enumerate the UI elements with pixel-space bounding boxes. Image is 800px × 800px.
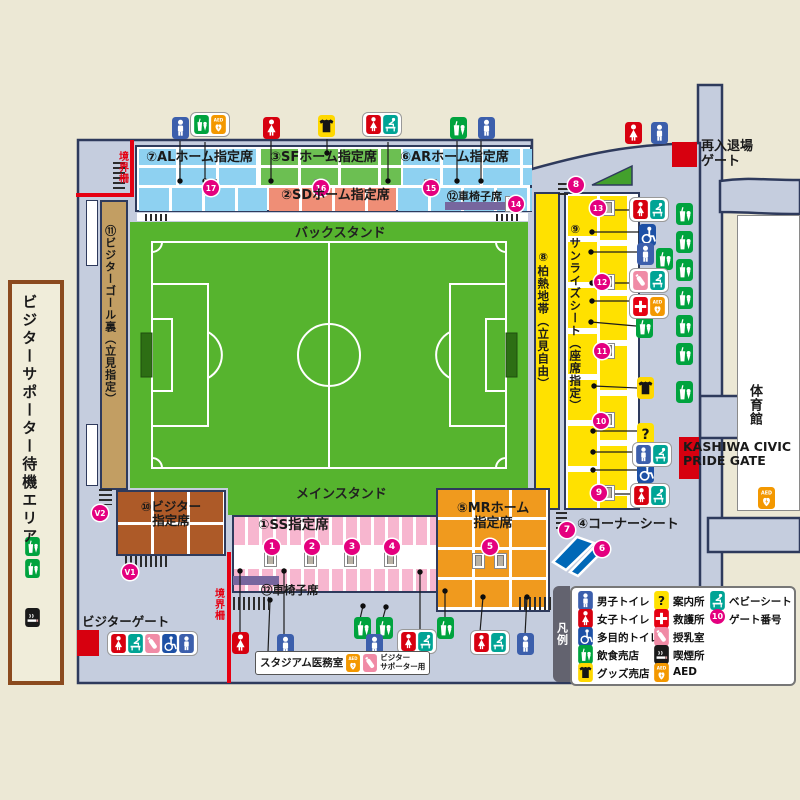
boundary-fence-label-top: 境界柵 <box>116 151 128 184</box>
gate-number-8: 8 <box>568 177 584 193</box>
female-icon <box>366 115 381 134</box>
entrance-door-icon <box>494 553 507 569</box>
food-icon <box>450 117 467 139</box>
gate-number-icon: 10 <box>710 609 725 624</box>
babyseat-icon <box>128 634 143 653</box>
seat-dot <box>417 569 422 574</box>
gate-number-6: 6 <box>594 541 610 557</box>
stadium-medical-room-box: スタジアム医務室 AED ビジター サポーター用 <box>255 651 430 675</box>
food-icon <box>676 315 693 337</box>
male-icon <box>517 633 534 655</box>
gate-number-15: 15 <box>423 180 439 196</box>
wheelchair-icon <box>578 627 593 646</box>
seat-dot <box>268 178 273 183</box>
legend-label: 喫煙所 <box>673 648 705 663</box>
seat-dot <box>177 178 182 183</box>
icon-group <box>470 630 510 655</box>
legend-label: AED <box>673 666 697 678</box>
stand-al-label: ⑦ALホーム指定席 <box>146 151 253 166</box>
icon-group: AED <box>629 294 669 319</box>
seat-dot <box>590 428 595 433</box>
ss-reserved-label: ①SS指定席 <box>258 518 329 534</box>
seat-dot <box>383 604 388 609</box>
icon-group <box>629 197 669 222</box>
food-icon <box>676 203 693 225</box>
icon-group <box>632 442 672 467</box>
stand-sd-label: ②SDホーム指定席 <box>281 189 390 204</box>
legend-label: 授乳室 <box>673 630 705 645</box>
seat-dot <box>385 178 390 183</box>
nursing-icon <box>145 634 160 653</box>
kashiwa-hot-zone-label: ⑧柏熱地帯（立見自由） <box>536 250 549 390</box>
goods-icon <box>578 663 593 682</box>
mr-home-label: ⑤MRホーム 指定席 <box>436 502 550 532</box>
gate-number-V1: V1 <box>122 564 138 580</box>
visitor-gate-marker <box>77 630 99 656</box>
male-icon <box>637 243 654 265</box>
babyseat-icon <box>653 445 668 464</box>
entrance-door-icon <box>472 553 485 569</box>
smoking-icon <box>25 608 40 627</box>
connector-line <box>525 597 527 635</box>
babyseat-icon <box>491 633 506 652</box>
stadium-map: 体育館 ビジターサポーター待機エリア <box>0 0 800 800</box>
gate-number-5: 5 <box>482 539 498 555</box>
legend-label: 飲食売店 <box>597 648 639 663</box>
seat-dot <box>588 319 593 324</box>
seat-dot <box>588 249 593 254</box>
seat-dot <box>589 229 594 234</box>
reentry-gate-marker <box>672 142 697 167</box>
legend-label: ベビーシート <box>729 594 792 609</box>
connector-line <box>591 322 636 326</box>
female-icon <box>232 632 249 654</box>
goods-icon <box>318 115 335 137</box>
gate-number-4: 4 <box>384 539 400 555</box>
seat-dot <box>590 467 595 472</box>
aed-icon: AED <box>758 487 775 509</box>
seat-dot <box>478 178 483 183</box>
gate-number-11: 11 <box>594 343 610 359</box>
food-icon <box>676 343 693 365</box>
stadium-medical-room-label: スタジアム医務室 <box>260 657 343 669</box>
gate-number-V2: V2 <box>92 505 108 521</box>
gate-number-17: 17 <box>203 180 219 196</box>
svg-text:AED: AED <box>761 491 772 497</box>
seat-dot <box>591 383 596 388</box>
female-icon <box>111 634 126 653</box>
female-icon <box>401 632 416 651</box>
legend-tab: 凡例 <box>553 586 570 682</box>
gate-number-10: 10 <box>593 413 609 429</box>
connector-line <box>480 597 483 632</box>
svg-text:AED: AED <box>349 656 359 661</box>
food-icon <box>578 645 593 664</box>
gate-number-13: 13 <box>590 200 606 216</box>
seat-dot <box>454 178 459 183</box>
visitor-reserved-label: ⑩ビジター 指定席 <box>116 500 226 529</box>
female-icon <box>263 117 280 139</box>
food-icon <box>656 248 673 270</box>
gate-number-9: 9 <box>591 485 607 501</box>
nursing-icon <box>363 654 377 672</box>
wheelchair-top-label: ⑫車椅子席 <box>447 191 502 204</box>
main-stand-label: メインスタンド <box>296 488 387 503</box>
seat-dot <box>480 594 485 599</box>
food-icon <box>676 231 693 253</box>
male-icon <box>172 117 189 139</box>
aed-icon: AED <box>650 297 665 316</box>
seat-dot <box>589 298 594 303</box>
stand-ar-label: ⑥ARホーム指定席 <box>400 151 509 166</box>
smoking-icon <box>654 645 669 664</box>
legend-label: グッズ売店 <box>597 666 650 681</box>
gate-number-14: 14 <box>508 196 524 212</box>
gate-number-3: 3 <box>344 539 360 555</box>
female-icon <box>633 200 648 219</box>
icon-group <box>630 483 670 508</box>
nursing-icon <box>654 627 669 646</box>
icon-group <box>629 268 669 293</box>
food-icon <box>676 259 693 281</box>
food-icon <box>636 316 653 338</box>
babyseat-icon <box>383 115 398 134</box>
visitor-gate-label: ビジターゲート <box>82 615 169 629</box>
svg-text:AED: AED <box>214 118 224 123</box>
icon-group <box>362 112 402 137</box>
aed-icon: AED <box>346 654 360 672</box>
wheelchair-bottom-label: ⑫車椅子席 <box>261 584 319 597</box>
legend-label: 案内所 <box>673 594 705 609</box>
icon-group <box>107 631 198 656</box>
male-icon <box>179 634 194 653</box>
connector-line <box>594 386 637 388</box>
female-icon <box>634 486 649 505</box>
male-icon <box>578 591 593 610</box>
gate-number-1: 1 <box>264 539 280 555</box>
female-icon <box>578 609 593 628</box>
firstaid-icon <box>654 609 669 628</box>
legend-label: 女子トイレ <box>597 612 650 627</box>
babyseat-icon <box>710 591 725 610</box>
babyseat-icon <box>650 200 665 219</box>
gate-number-2: 2 <box>304 539 320 555</box>
food-icon <box>194 115 209 134</box>
food-icon <box>25 559 40 578</box>
legend-title: 凡例 <box>554 622 570 646</box>
nursing-icon <box>633 271 648 290</box>
food-icon <box>437 617 454 639</box>
gate-number-7: 7 <box>559 522 575 538</box>
male-icon <box>478 117 495 139</box>
kashiwa-civic-pride-gate-label: KASHIWA CIVIC PRIDE GATE <box>683 440 791 469</box>
seat-dot <box>590 449 595 454</box>
legend-label: 救護所 <box>673 612 705 627</box>
seat-dot <box>281 568 286 573</box>
male-icon <box>636 445 651 464</box>
food-icon <box>676 381 693 403</box>
visitor-waiting-area-label: ビジターサポーター待機エリア <box>20 294 37 546</box>
aed-icon: AED <box>211 115 226 134</box>
stand-sf-label: ③SFホーム指定席 <box>270 151 377 166</box>
goods-icon <box>637 377 654 399</box>
for-visitor-supporters-label: ビジター サポーター用 <box>380 654 425 671</box>
seat-dot <box>442 588 447 593</box>
babyseat-icon <box>418 632 433 651</box>
svg-text:AED: AED <box>657 666 667 671</box>
firstaid-icon <box>633 297 648 316</box>
aed-icon: AED <box>654 663 669 682</box>
legend-label: ゲート番号 <box>729 612 782 627</box>
connector-line <box>268 600 270 652</box>
female-icon <box>474 633 489 652</box>
reentry-gate-label: 再入退場 ゲート <box>701 140 753 170</box>
babyseat-icon <box>651 486 666 505</box>
icon-group: AED <box>190 112 230 137</box>
seat-dot <box>267 597 272 602</box>
sunrise-seat-label: ⑨サンライズシート（座席指定） <box>568 222 581 412</box>
seat-dot <box>360 603 365 608</box>
svg-text:?: ? <box>658 594 665 608</box>
seat-dot <box>524 594 529 599</box>
wheelchair-icon <box>162 634 177 653</box>
food-icon <box>676 287 693 309</box>
corner-seat-label: ④コーナーシート <box>577 518 679 533</box>
boundary-fence-label-south: 境界柵 <box>212 588 224 621</box>
legend-label: 男子トイレ <box>597 594 650 609</box>
male-icon <box>651 122 668 144</box>
female-icon <box>625 122 642 144</box>
svg-text:?: ? <box>641 427 649 443</box>
babyseat-icon <box>650 271 665 290</box>
back-stand-label: バックスタンド <box>295 227 386 242</box>
visitor-goal-back-label: ⑪ビジターゴール裏（立見指定） <box>103 225 116 405</box>
svg-text:AED: AED <box>653 300 663 305</box>
gymnasium-label: 体育館 <box>746 384 761 426</box>
seat-dot <box>237 568 242 573</box>
legend-label: 多目的トイレ <box>597 630 660 645</box>
info-icon: ? <box>654 591 669 610</box>
gate-number-12: 12 <box>594 274 610 290</box>
